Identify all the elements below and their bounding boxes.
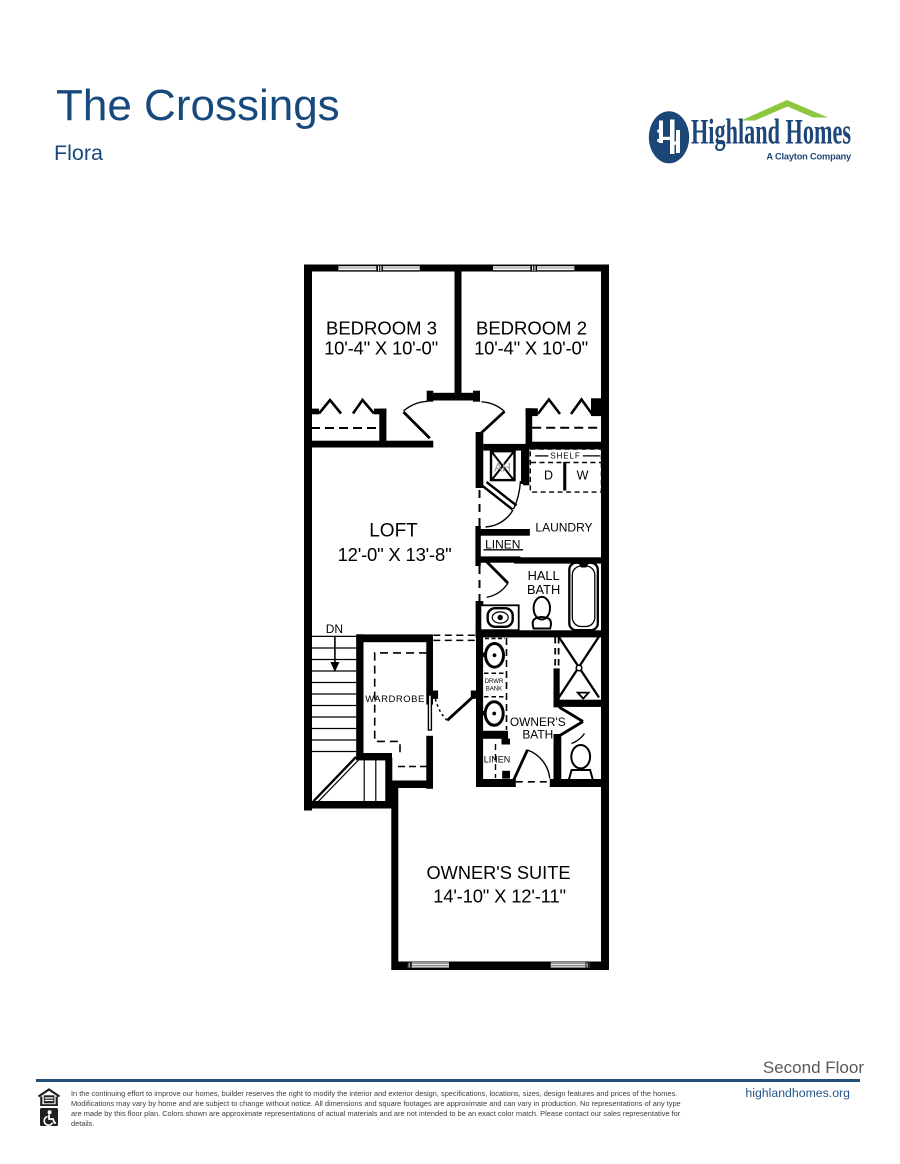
svg-text:BATH: BATH bbox=[527, 582, 560, 597]
svg-text:SHELF: SHELF bbox=[550, 452, 580, 461]
svg-text:10'-4" X 10'-0": 10'-4" X 10'-0" bbox=[474, 338, 588, 359]
svg-text:LOFT: LOFT bbox=[369, 521, 418, 542]
svg-text:W: W bbox=[577, 469, 589, 483]
svg-text:14'-10" X 12'-11": 14'-10" X 12'-11" bbox=[433, 886, 566, 907]
svg-text:10'-4" X 10'-0": 10'-4" X 10'-0" bbox=[324, 338, 438, 359]
svg-text:D: D bbox=[544, 469, 553, 483]
svg-text:BANK: BANK bbox=[486, 686, 502, 692]
svg-text:WARDROBE: WARDROBE bbox=[365, 694, 425, 705]
svg-text:BATH: BATH bbox=[522, 728, 553, 742]
svg-text:OWNER'S SUITE: OWNER'S SUITE bbox=[427, 863, 571, 883]
svg-text:BEDROOM 3: BEDROOM 3 bbox=[326, 318, 437, 339]
svg-text:DRWR: DRWR bbox=[485, 679, 504, 685]
svg-text:BEDROOM 2: BEDROOM 2 bbox=[476, 318, 587, 339]
svg-text:HALL: HALL bbox=[528, 568, 560, 583]
svg-text:DN: DN bbox=[326, 622, 343, 636]
svg-text:LAUNDRY: LAUNDRY bbox=[535, 521, 592, 535]
svg-text:AH: AH bbox=[494, 461, 511, 475]
svg-text:LINEN: LINEN bbox=[484, 755, 511, 765]
svg-text:12'-0" X 13'-8": 12'-0" X 13'-8" bbox=[338, 544, 452, 565]
